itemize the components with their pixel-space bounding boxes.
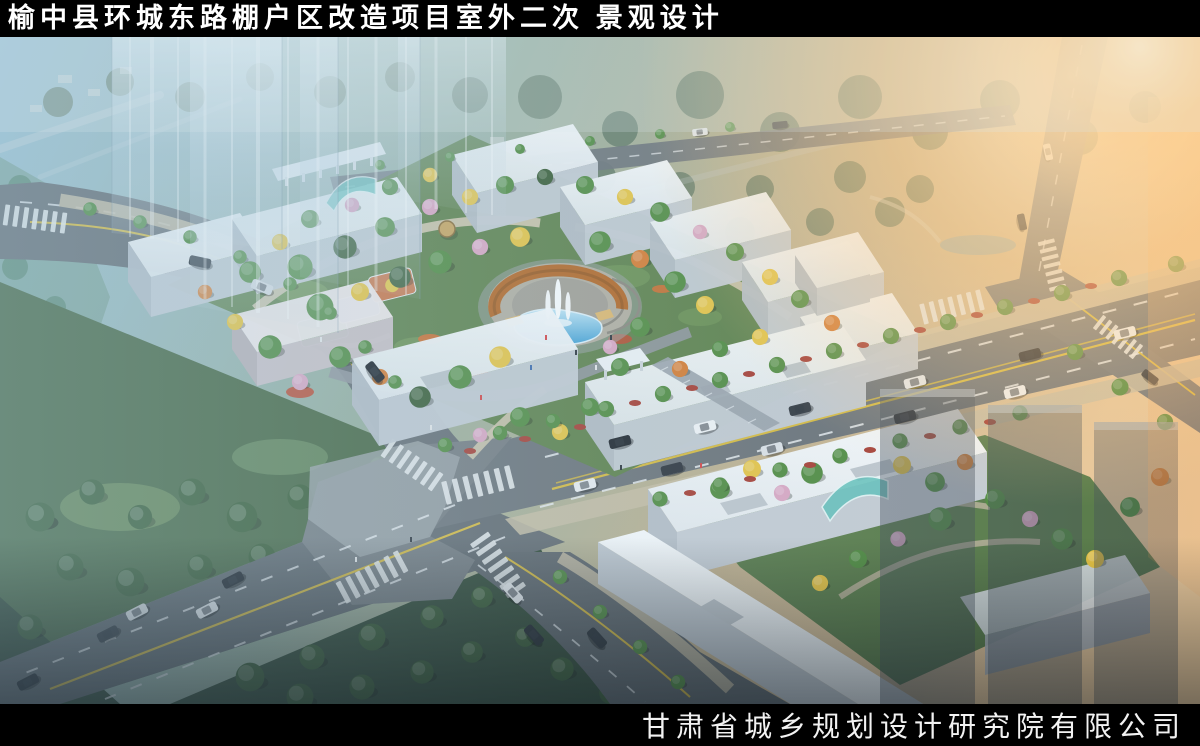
rendering-canvas bbox=[0, 37, 1200, 704]
title-bar: 榆中县环城东路棚户区改造项目室外二次 景观设计 bbox=[0, 0, 1200, 37]
project-title: 榆中县环城东路棚户区改造项目室外二次 景观设计 bbox=[8, 5, 724, 32]
presentation-board: 榆中县环城东路棚户区改造项目室外二次 景观设计 bbox=[0, 0, 1200, 746]
color-grade bbox=[0, 37, 1200, 704]
company-name: 甘肃省城乡规划设计研究院有限公司 bbox=[642, 705, 1186, 745]
aerial-rendering bbox=[0, 37, 1200, 704]
credit-bar: 甘肃省城乡规划设计研究院有限公司 bbox=[0, 704, 1200, 746]
